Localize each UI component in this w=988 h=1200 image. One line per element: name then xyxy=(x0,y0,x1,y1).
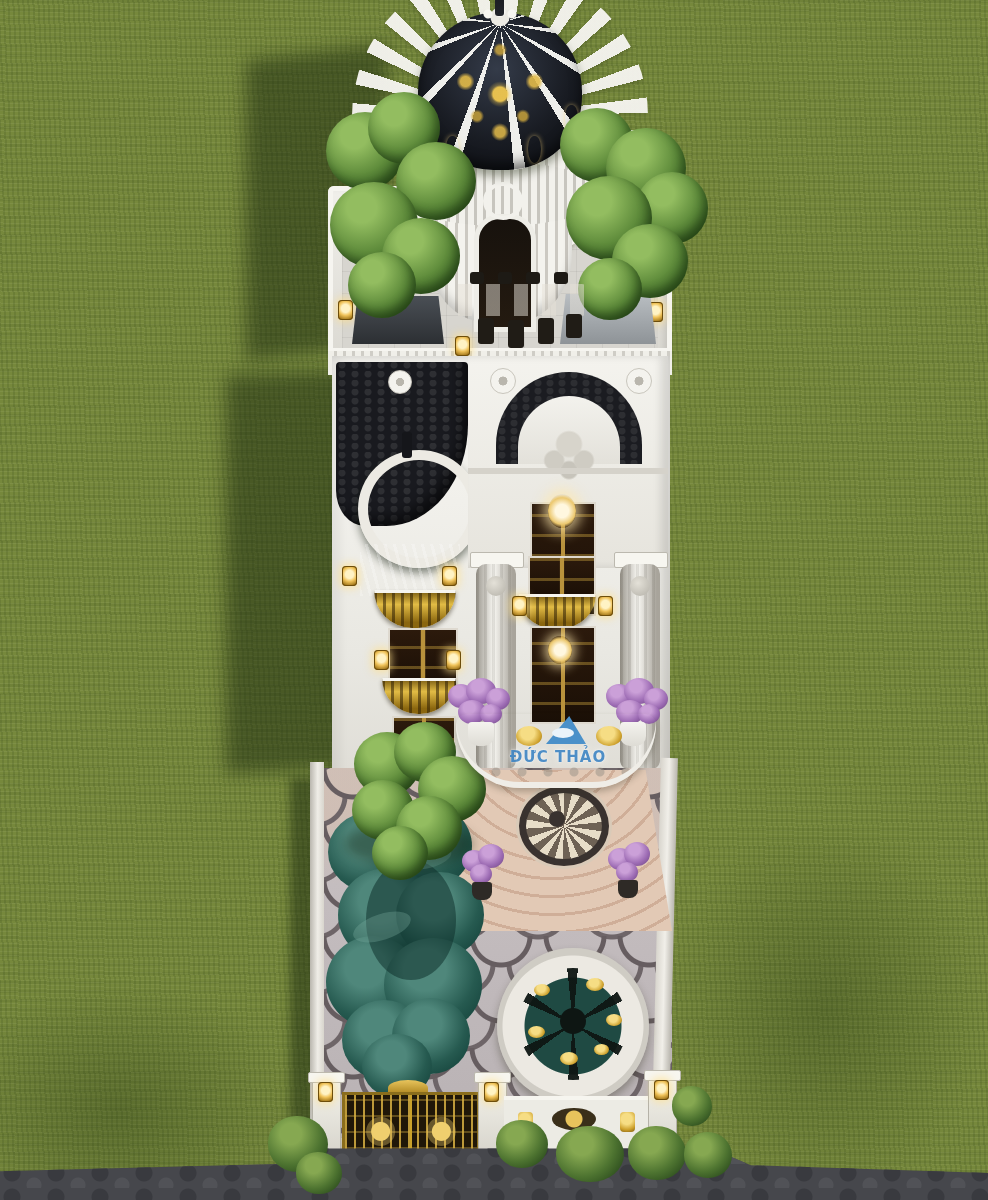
cornice-line xyxy=(468,468,668,474)
round-warm-window xyxy=(483,182,523,220)
fountain-hub xyxy=(560,1008,586,1034)
logo-swan-icon xyxy=(552,728,574,738)
pillar-lantern xyxy=(318,1082,333,1102)
wall-lantern xyxy=(446,650,461,670)
medallion-center xyxy=(549,811,565,827)
pillar-lantern xyxy=(484,1082,499,1102)
terrace-lantern xyxy=(455,336,470,356)
hedge-bush xyxy=(556,1126,624,1182)
wall-lantern xyxy=(598,596,613,616)
wall-lantern xyxy=(442,566,457,586)
gold-urn xyxy=(528,136,541,163)
cherub-relief xyxy=(630,576,650,596)
hedge-bush xyxy=(684,1132,732,1178)
wall-lantern xyxy=(512,596,527,616)
cherub-relief xyxy=(486,576,506,596)
terrace-lantern xyxy=(338,300,353,320)
hedge-bush xyxy=(672,1086,712,1126)
fence-medallion xyxy=(620,1112,635,1132)
pillar-lantern xyxy=(654,1080,669,1100)
arch-volute xyxy=(490,368,516,394)
arch-volute xyxy=(626,368,652,394)
wall-lantern xyxy=(374,650,389,670)
floor-medallion xyxy=(519,786,609,866)
watermark-text: ĐỨC THẢO xyxy=(498,748,618,766)
hedge-bush xyxy=(296,1152,342,1194)
hedge-bush xyxy=(628,1126,686,1180)
chandelier-glow xyxy=(548,636,572,664)
small-dome-spike xyxy=(402,432,412,458)
hedge-bush xyxy=(496,1120,548,1168)
roof-volute xyxy=(388,370,412,394)
wall-lantern xyxy=(342,566,357,586)
dome-spire xyxy=(495,0,504,16)
chandelier-glow xyxy=(548,494,576,528)
architectural-render: ĐỨC THẢO xyxy=(0,0,988,1200)
